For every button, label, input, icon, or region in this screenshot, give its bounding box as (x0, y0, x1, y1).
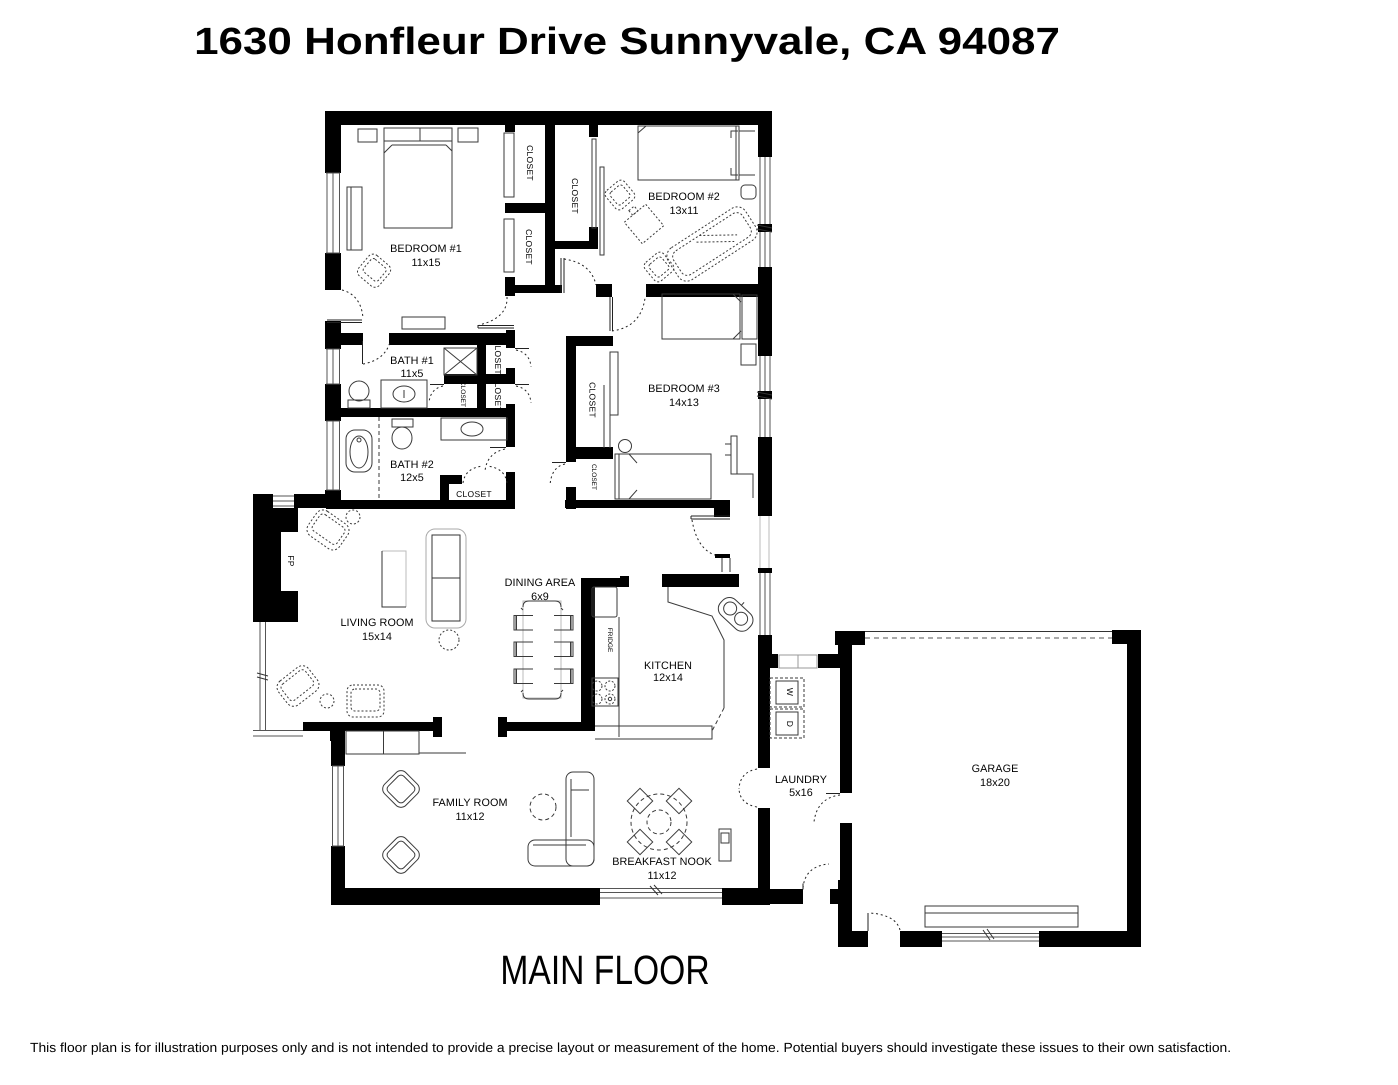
svg-text:12x14: 12x14 (653, 672, 683, 684)
svg-text:BATH #2: BATH #2 (390, 459, 434, 471)
svg-text:FP: FP (286, 555, 296, 566)
svg-text:11x12: 11x12 (647, 870, 676, 882)
svg-text:BATH #1: BATH #1 (390, 355, 434, 367)
svg-text:11x5: 11x5 (400, 368, 423, 380)
svg-text:11x15: 11x15 (411, 257, 440, 269)
svg-text:W: W (785, 688, 795, 696)
svg-text:1630 Honfleur Drive Sunnyvale,: 1630 Honfleur Drive Sunnyvale, CA 94087 (194, 21, 1060, 63)
svg-text:GARAGE: GARAGE (972, 763, 1019, 775)
svg-text:CLOSET: CLOSET (524, 229, 534, 265)
svg-text:CLOSET: CLOSET (590, 464, 597, 490)
svg-text:This floor plan is for illustr: This floor plan is for illustration purp… (30, 1040, 1231, 1055)
svg-text:CLOSET: CLOSET (493, 339, 503, 375)
svg-text:FAMILY ROOM: FAMILY ROOM (432, 797, 507, 809)
svg-text:FRIDGE: FRIDGE (606, 628, 613, 653)
svg-text:CLOSET: CLOSET (459, 381, 466, 407)
svg-text:DINING AREA: DINING AREA (505, 577, 576, 589)
svg-text:CLOSET: CLOSET (588, 382, 598, 418)
svg-text:BREAKFAST NOOK: BREAKFAST NOOK (612, 856, 712, 868)
svg-text:MAIN FLOOR: MAIN FLOOR (500, 947, 709, 993)
svg-text:KITCHEN: KITCHEN (644, 660, 692, 672)
svg-text:14x13: 14x13 (669, 397, 699, 409)
svg-text:13x11: 13x11 (669, 205, 698, 217)
svg-text:CLOSET: CLOSET (493, 376, 503, 412)
svg-text:18x20: 18x20 (980, 777, 1010, 789)
svg-text:15x14: 15x14 (362, 631, 392, 643)
svg-text:BEDROOM #3: BEDROOM #3 (648, 383, 720, 395)
svg-text:LAUNDRY: LAUNDRY (775, 774, 827, 786)
svg-text:12x5: 12x5 (400, 472, 424, 484)
svg-text:CLOSET: CLOSET (525, 145, 535, 181)
svg-text:CLOSET: CLOSET (570, 178, 580, 214)
svg-text:BEDROOM #1: BEDROOM #1 (390, 243, 462, 255)
svg-text:D: D (785, 721, 795, 727)
svg-text:BEDROOM #2: BEDROOM #2 (648, 191, 720, 203)
svg-text:6x9: 6x9 (531, 591, 549, 603)
svg-text:CLOSET: CLOSET (456, 489, 492, 499)
svg-text:11x12: 11x12 (455, 811, 484, 823)
svg-text:LIVING ROOM: LIVING ROOM (340, 617, 413, 629)
svg-text:5x16: 5x16 (789, 787, 813, 799)
